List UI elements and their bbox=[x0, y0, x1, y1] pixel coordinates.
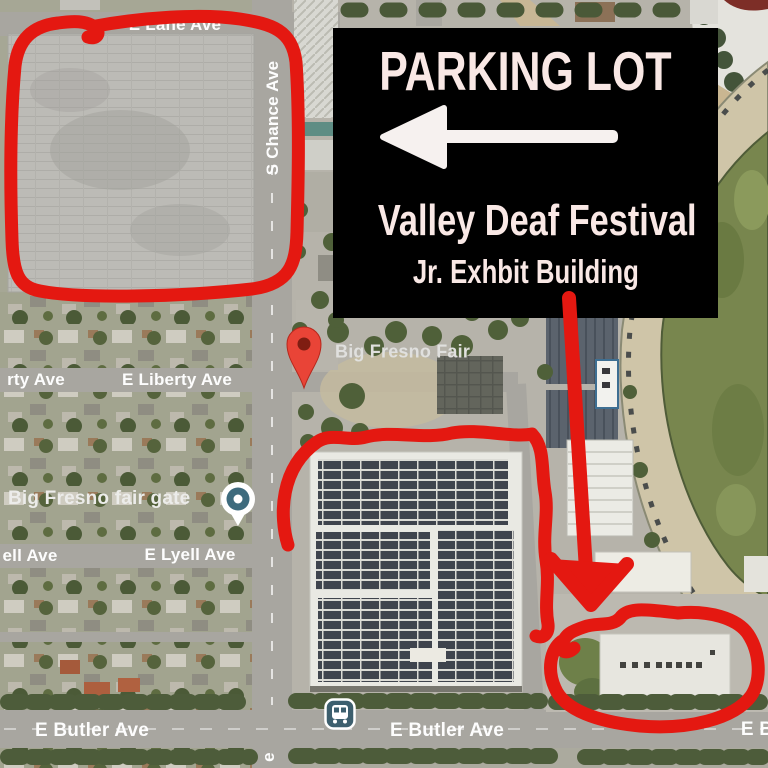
card-subtitle: Valley Deaf Festival bbox=[333, 198, 718, 244]
street-label-chance-south-partial: e bbox=[259, 752, 279, 762]
card-title: PARKING LOT bbox=[333, 42, 718, 100]
street-label-lyell-partial: ell Ave bbox=[3, 546, 58, 566]
street-label-liberty-partial: rty Ave bbox=[7, 370, 65, 390]
street-label-lyell: E Lyell Ave bbox=[144, 545, 235, 565]
gate-marker-icon[interactable] bbox=[218, 480, 258, 528]
poi-label-big-fresno-fair-gate[interactable]: Big Fresno fair gate bbox=[8, 488, 190, 510]
street-label-butler-mid: E Butler Ave bbox=[390, 720, 504, 742]
street-label-lane: E Lane Ave bbox=[129, 15, 221, 35]
card-subtitle2: Jr. Exhbit Building bbox=[333, 254, 718, 289]
info-card: PARKING LOT Valley Deaf Festival Jr. Exh… bbox=[333, 28, 718, 318]
annotated-map-flyer: { "card": { "title": "PARKING LOT", "sub… bbox=[0, 0, 768, 768]
poi-label-big-fresno-fair[interactable]: Big Fresno Fair bbox=[335, 342, 470, 363]
bus-icon[interactable] bbox=[324, 698, 356, 730]
street-label-butler-east-partial: E B bbox=[741, 719, 768, 741]
street-label-chance: S Chance Ave bbox=[263, 61, 283, 176]
street-label-butler-west: E Butler Ave bbox=[35, 720, 149, 742]
red-pin-icon[interactable] bbox=[284, 322, 324, 392]
street-label-liberty: E Liberty Ave bbox=[122, 370, 232, 390]
